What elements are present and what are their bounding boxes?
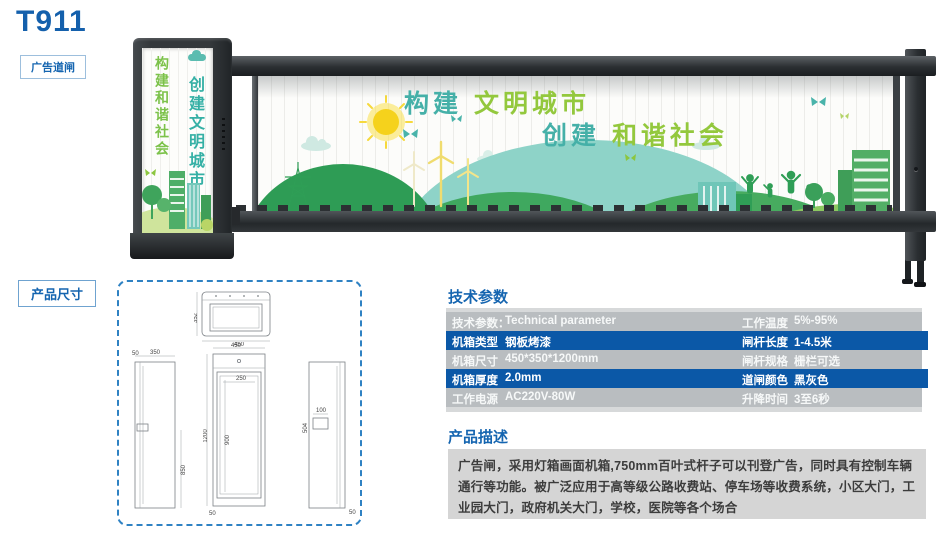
spec-label: 机箱厚度: [452, 372, 498, 388]
cabinet-city-illustration: [142, 153, 213, 233]
spec-label: 闸杆长度: [742, 334, 788, 350]
svg-text:850: 850: [181, 464, 187, 475]
cabinet-base: [130, 233, 234, 259]
spec-row: 工作电源 AC220V-80W 升降时间 3至6秒: [446, 388, 922, 407]
spec-value: 5%-95%: [794, 315, 837, 327]
spec-value: 3至6秒: [794, 391, 830, 407]
arm-top-rail: [224, 56, 936, 76]
cabinet-slogan-left: 构建和谐社会: [152, 56, 172, 158]
spec-value: 钢板烤漆: [505, 334, 551, 350]
cabinet-lightbox: 构建和谐社会 创建文明城市: [142, 48, 213, 233]
product-category-tag: 广告道闸: [20, 55, 86, 79]
model-number: T911: [16, 5, 87, 39]
svg-text:900: 900: [225, 434, 231, 445]
drawing-front-view: 450 1200 900 250 50: [203, 342, 275, 518]
svg-text:50: 50: [132, 351, 139, 357]
svg-text:50: 50: [349, 510, 356, 516]
support-leg: [905, 258, 911, 280]
support-foot: [902, 279, 913, 284]
svg-text:50: 50: [209, 511, 216, 517]
svg-text:250: 250: [236, 376, 247, 382]
dimensions-panel: 352 450 50 350 850 450: [117, 280, 362, 526]
spec-row: 技术参数： Technical parameter 工作温度 5%-95%: [446, 312, 922, 331]
drawing-top-view: 352 450: [194, 288, 278, 348]
svg-text:350: 350: [150, 350, 161, 356]
spec-value: 2.0mm: [505, 372, 541, 384]
spec-value: AC220V-80W: [505, 391, 575, 403]
banner-slogan-line1: 构建文明城市: [404, 84, 590, 120]
specs-table: 技术参数： Technical parameter 工作温度 5%-95% 机箱…: [446, 308, 928, 412]
spec-label: 机箱尺寸: [452, 353, 498, 369]
svg-text:1200: 1200: [203, 429, 209, 443]
drawing-side-view-left: 50 350 850: [127, 348, 191, 518]
spec-label: 工作电源: [452, 391, 498, 407]
svg-text:504: 504: [303, 422, 309, 433]
table-frame-strip: [446, 407, 922, 412]
spec-label: 闸杆规格: [742, 353, 788, 369]
barrier-arm-banner: 构建文明城市 创建和谐社会: [258, 74, 894, 214]
spec-label: 技术参数：: [452, 315, 510, 331]
spec-row: 机箱类型 钢板烤漆 闸杆长度 1-4.5米: [446, 331, 928, 350]
svg-text:352: 352: [194, 312, 199, 323]
arm-end-frame: [893, 74, 900, 214]
cabinet-vents: [222, 118, 225, 152]
svg-text:100: 100: [316, 408, 327, 414]
spec-label: 机箱类型: [452, 334, 498, 350]
spec-row: 机箱尺寸 450*350*1200mm 闸杆规格 栅栏可选: [446, 350, 922, 369]
support-foot: [914, 282, 926, 287]
description-text: 广告闸，采用灯箱画面机箱,750mm百叶式杆子可以刊登广告，同时具有控制车辆通行…: [448, 449, 926, 519]
dimensions-section-label: 产品尺寸: [18, 280, 96, 307]
spec-label: 道闸颜色: [742, 372, 788, 388]
cloud-icon: [188, 54, 206, 61]
page: T911 广告道闸: [0, 0, 950, 534]
spec-value: 1-4.5米: [794, 334, 832, 350]
spec-value: Technical parameter: [505, 315, 616, 327]
arm-bottom-rail: [231, 211, 936, 232]
spec-value: 栅栏可选: [794, 353, 840, 369]
spec-value: 450*350*1200mm: [505, 353, 598, 365]
svg-text:450: 450: [234, 342, 245, 348]
spec-label: 工作温度: [742, 315, 788, 331]
spec-row: 机箱厚度 2.0mm 道闸颜色 黑灰色: [446, 369, 928, 388]
banner-slogan-line2: 创建和谐社会: [542, 116, 728, 152]
spec-label: 升降时间: [742, 391, 788, 407]
spec-value: 黑灰色: [794, 372, 829, 388]
gate-cabinet: 构建和谐社会 创建文明城市: [133, 38, 232, 235]
specs-section-title: 技术参数: [448, 286, 508, 307]
drawing-side-view-right: 100 504 50: [297, 352, 359, 518]
bolt-icon: [914, 167, 918, 171]
description-section-title: 产品描述: [448, 426, 508, 447]
arm-strut: [252, 74, 258, 214]
